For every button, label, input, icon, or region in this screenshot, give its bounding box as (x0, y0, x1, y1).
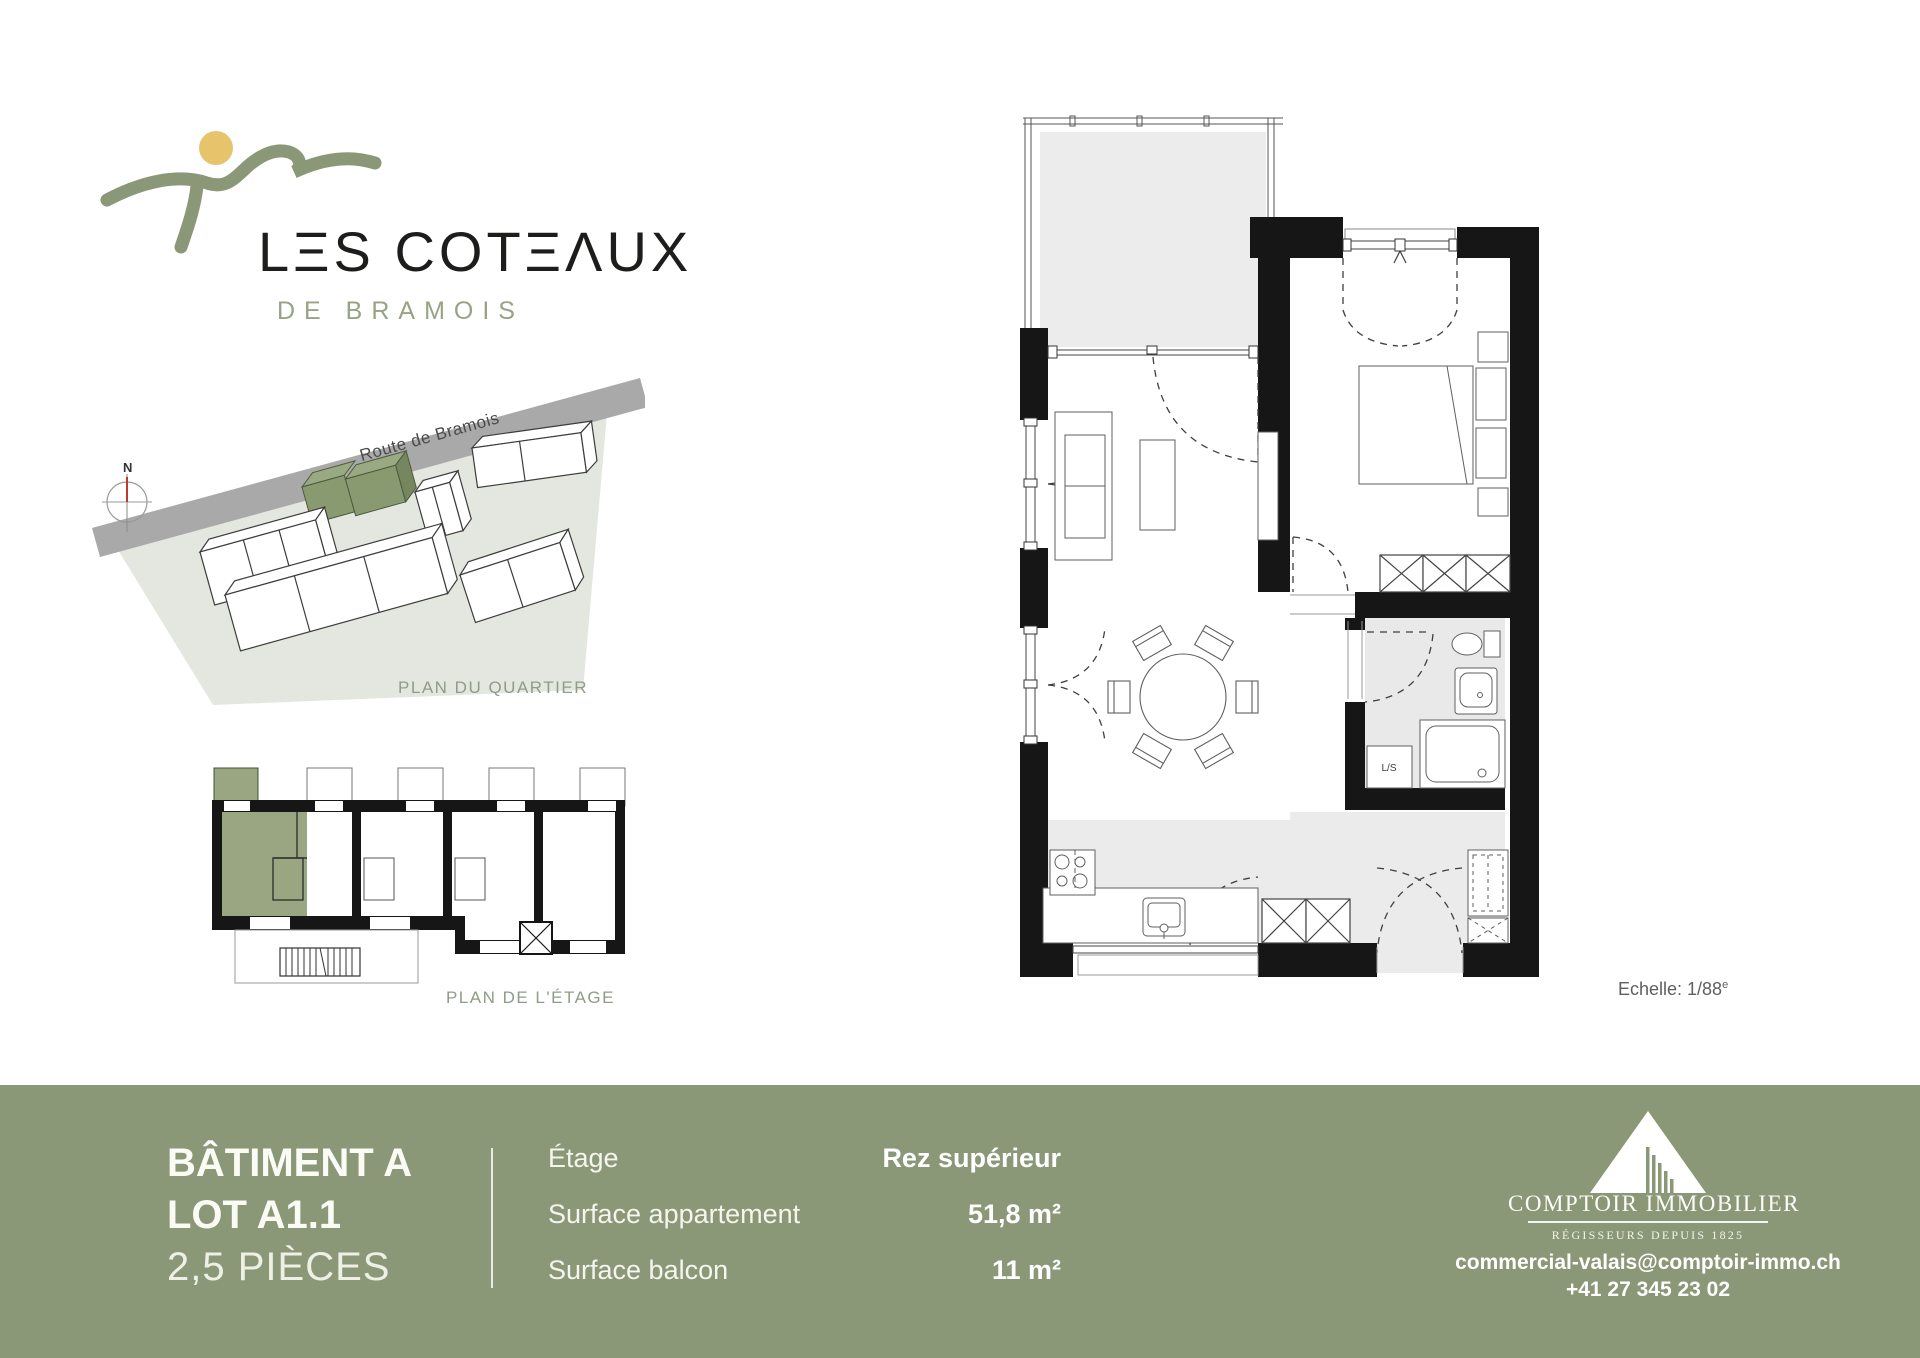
footer-band: BÂTIMENT A LOT A1.1 2,5 PIÈCES Étage Sur… (0, 1085, 1920, 1358)
kitchen-window (1073, 946, 1258, 975)
spec-label-surface-appartement: Surface appartement (548, 1201, 800, 1228)
agency-underline (1528, 1221, 1768, 1223)
entry-cabinet (1468, 850, 1508, 943)
washer-dryer-label: L/S (1381, 763, 1396, 774)
spec-value-surface-appartement: 51,8 m² (800, 1201, 1061, 1228)
neighborhood-plan: Route de Bramois N (90, 370, 645, 715)
nightstand (1478, 488, 1508, 516)
spec-value-etage: Rez supérieur (800, 1145, 1061, 1172)
agency-name: COMPTOIR IMMOBILIER (1508, 1192, 1788, 1215)
nightstand (1478, 332, 1508, 362)
agency-phone: +41 27 345 23 02 (1448, 1279, 1848, 1300)
spec-label-etage: Étage (548, 1145, 619, 1172)
storey-plan (160, 750, 640, 995)
dining-table (1140, 654, 1226, 740)
sun-icon (199, 131, 233, 165)
quartier-caption: PLAN DU QUARTIER (388, 679, 588, 696)
brand-subtitle: DE BRAMOIS (277, 299, 524, 324)
entry-wardrobe (1262, 899, 1350, 943)
rooms-label: 2,5 PIÈCES (167, 1241, 412, 1293)
scale-sup: e (1722, 979, 1728, 991)
bed (1359, 366, 1473, 484)
apartment-plan: L/S (1012, 95, 1547, 990)
entry-threshold (1377, 943, 1463, 973)
hill-ridge-stroke (107, 151, 375, 200)
spec-label-surface-balcon: Surface balcon (548, 1257, 728, 1284)
agency-tagline: RÉGISSEURS DEPUIS 1825 (1508, 1229, 1788, 1241)
kitchen-sink (1143, 898, 1185, 939)
agency-email: commercial-valais@comptoir-immo.ch (1448, 1252, 1848, 1273)
building-label: BÂTIMENT A (167, 1137, 412, 1189)
toilet-tank (1484, 631, 1500, 657)
staircase (235, 930, 418, 983)
balcony (1023, 116, 1283, 347)
brand-wordmark: LΞS COTΞΛUX (258, 224, 692, 280)
etage-caption: PLAN DE L'ÉTAGE (405, 989, 615, 1006)
compass-north-label: N (123, 460, 132, 475)
spec-value-surface-balcon: 11 m² (800, 1257, 1061, 1284)
bedroom-window (1343, 229, 1457, 251)
pillow (1476, 428, 1506, 478)
sofa (1055, 412, 1112, 560)
floor-plan-sheet: LΞS COTΞΛUX DE BRAMOIS Route de Bramois … (0, 0, 1920, 1358)
footer-divider (491, 1148, 493, 1288)
living-window-lower (1024, 626, 1037, 744)
scale-text: Echelle: 1/88 (1618, 979, 1722, 999)
hill-tail-stroke (181, 186, 197, 247)
elevator (520, 922, 552, 954)
scale-label: Echelle: 1/88e (1618, 980, 1728, 998)
agency-logo-icon (1588, 1111, 1708, 1195)
unit-title: BÂTIMENT A LOT A1.1 2,5 PIÈCES (167, 1137, 412, 1293)
toilet-icon (1452, 633, 1482, 655)
sideboard (1258, 432, 1278, 540)
lot-label: LOT A1.1 (167, 1189, 412, 1241)
coffee-table (1140, 440, 1175, 530)
living-window-upper (1024, 418, 1037, 550)
bedroom-closet (1380, 555, 1510, 592)
pillow (1476, 368, 1506, 420)
